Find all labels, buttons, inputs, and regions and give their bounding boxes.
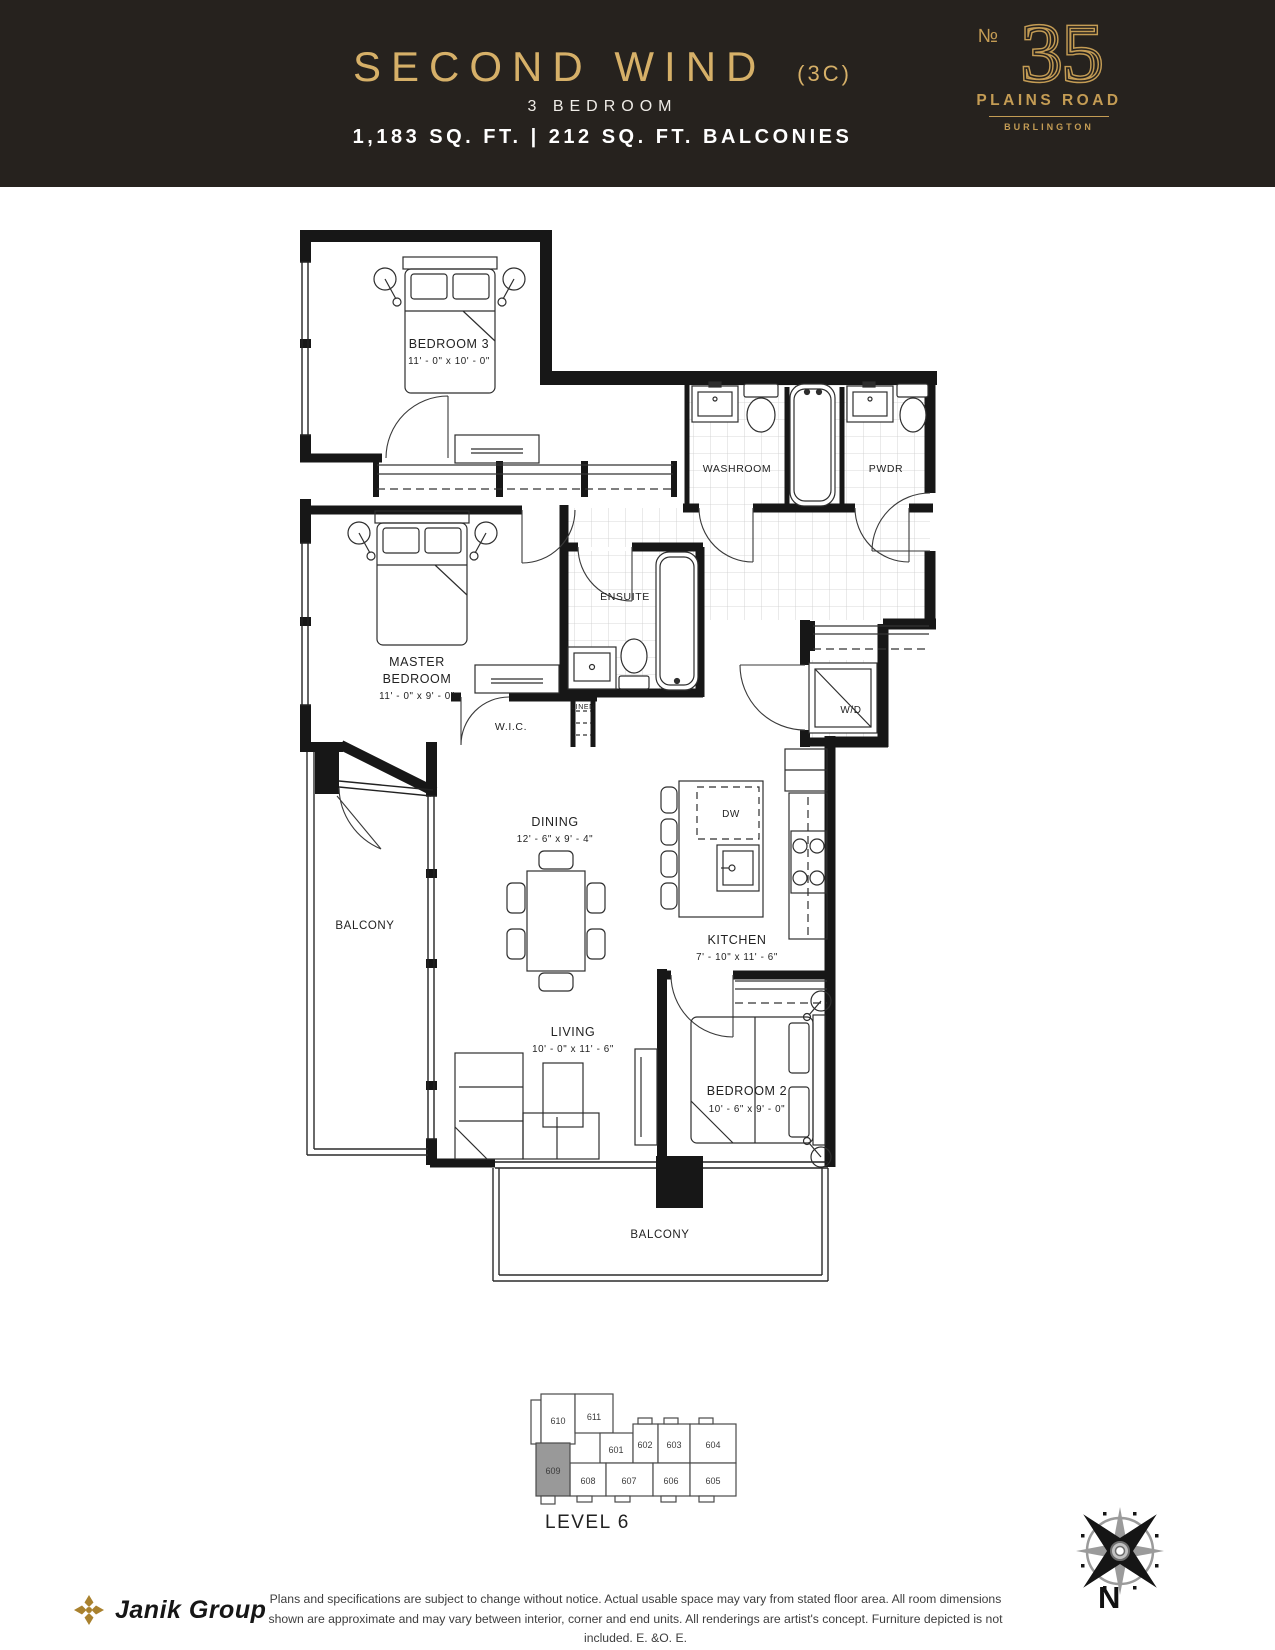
disclaimer-line-2: shown are approximate and may vary betwe… bbox=[248, 1610, 1023, 1649]
label-kitchen: KITCHEN bbox=[707, 933, 766, 947]
bedroom3-dresser bbox=[455, 435, 539, 463]
fridge bbox=[785, 749, 827, 791]
north-label: N bbox=[1098, 1580, 1120, 1616]
unit-607: 607 bbox=[621, 1476, 636, 1486]
label-linen: LINEN bbox=[571, 704, 595, 711]
washroom-bathtub bbox=[790, 384, 835, 506]
label-balcony-left: BALCONY bbox=[335, 920, 394, 932]
brochure-page: SECOND WIND (3C) 3 BEDROOM 1,183 SQ. FT.… bbox=[0, 0, 1275, 1650]
label-bedroom3: BEDROOM 3 bbox=[409, 337, 489, 351]
washroom-vanity bbox=[692, 382, 738, 422]
label-master-2: BEDROOM bbox=[383, 672, 452, 686]
logo-city: BURLINGTON bbox=[963, 122, 1135, 132]
brand-name: Janik Group bbox=[115, 1596, 266, 1625]
tv-console bbox=[635, 1049, 657, 1145]
keyplan: 610 611 601 602 603 604 609 608 607 606 … bbox=[503, 1386, 743, 1514]
janik-compass-icon bbox=[72, 1594, 106, 1626]
unit-name: SECOND WIND bbox=[353, 43, 766, 90]
unit-605: 605 bbox=[705, 1476, 720, 1486]
dims-kitchen: 7' - 10" x 11' - 6" bbox=[696, 952, 778, 963]
label-dining: DINING bbox=[531, 815, 578, 829]
floorplan: BEDROOM 3 11' - 0" x 10' - 0" WASHROOM P… bbox=[285, 215, 945, 1295]
master-sconces bbox=[348, 522, 497, 560]
dims-bedroom2: 10' - 6" x 9' - 0" bbox=[709, 1104, 786, 1115]
kitchen-counter bbox=[789, 793, 827, 939]
disclaimer-line-1: Plans and specifications are subject to … bbox=[248, 1590, 1023, 1610]
label-bedroom2: BEDROOM 2 bbox=[707, 1084, 787, 1098]
header-bar: SECOND WIND (3C) 3 BEDROOM 1,183 SQ. FT.… bbox=[0, 0, 1275, 187]
unit-611: 611 bbox=[587, 1412, 601, 1422]
dims-bedroom3: 11' - 0" x 10' - 0" bbox=[408, 356, 490, 367]
label-living: LIVING bbox=[551, 1025, 596, 1039]
dining-table bbox=[507, 851, 605, 991]
unit-602: 602 bbox=[637, 1440, 652, 1450]
unit-variant bbox=[788, 61, 797, 86]
unit-608: 608 bbox=[580, 1476, 595, 1486]
logo-street: PLAINS ROAD bbox=[963, 92, 1135, 110]
sofa bbox=[455, 1053, 599, 1159]
logo-35-numerals: 35 35 bbox=[1002, 12, 1120, 92]
logo-divider bbox=[989, 116, 1109, 117]
unit-604: 604 bbox=[705, 1440, 720, 1450]
building-logo: № 35 35 PLAINS ROAD BURLINGTON bbox=[963, 12, 1135, 132]
balcony-door bbox=[337, 788, 381, 849]
bedroom3-bed bbox=[403, 257, 497, 393]
logo-number-row: № 35 35 bbox=[963, 12, 1135, 92]
bedroom3-door bbox=[386, 396, 448, 458]
unit-606: 606 bbox=[663, 1476, 678, 1486]
label-balcony-bottom: BALCONY bbox=[630, 1229, 689, 1241]
logo-no-symbol: № bbox=[978, 26, 999, 48]
bedroom2-bed bbox=[691, 1015, 825, 1145]
bedroom3-sconces bbox=[374, 268, 525, 306]
unit-610: 610 bbox=[550, 1416, 565, 1426]
unit-609: 609 bbox=[545, 1466, 560, 1476]
master-bed bbox=[375, 511, 469, 645]
dims-dining: 12' - 6" x 9' - 4" bbox=[517, 834, 594, 845]
dims-master: 11' - 0" x 9' - 0" bbox=[379, 691, 455, 702]
washer-dryer bbox=[809, 663, 877, 733]
washroom-toilet bbox=[744, 384, 778, 432]
unit-603: 603 bbox=[666, 1440, 681, 1450]
label-wic: W.I.C. bbox=[495, 721, 527, 733]
master-dresser bbox=[475, 665, 559, 693]
label-ensuite: ENSUITE bbox=[600, 591, 650, 603]
label-master-1: MASTER bbox=[389, 655, 445, 669]
unit-variant-code: (3C) bbox=[797, 61, 852, 86]
svg-text:35: 35 bbox=[1021, 12, 1103, 92]
label-washroom: WASHROOM bbox=[703, 463, 772, 475]
disclaimer: Plans and specifications are subject to … bbox=[248, 1590, 1023, 1649]
wd-door bbox=[740, 665, 805, 730]
ensuite-toilet bbox=[619, 639, 649, 689]
dims-living: 10' - 0" x 11' - 6" bbox=[532, 1044, 614, 1055]
coffee-table bbox=[543, 1063, 583, 1127]
developer-brand: Janik Group bbox=[72, 1594, 266, 1626]
label-wd: W/D bbox=[840, 705, 861, 716]
kitchen-island bbox=[661, 781, 763, 917]
bedroom2-door bbox=[671, 975, 733, 1037]
level-label: LEVEL 6 bbox=[545, 1512, 630, 1534]
unit-601: 601 bbox=[608, 1445, 623, 1455]
pwdr-vanity bbox=[847, 382, 893, 422]
label-pwdr: PWDR bbox=[869, 463, 903, 475]
ensuite-bathtub bbox=[656, 552, 698, 690]
ensuite-vanity bbox=[568, 647, 616, 689]
label-dw: DW bbox=[722, 809, 740, 820]
